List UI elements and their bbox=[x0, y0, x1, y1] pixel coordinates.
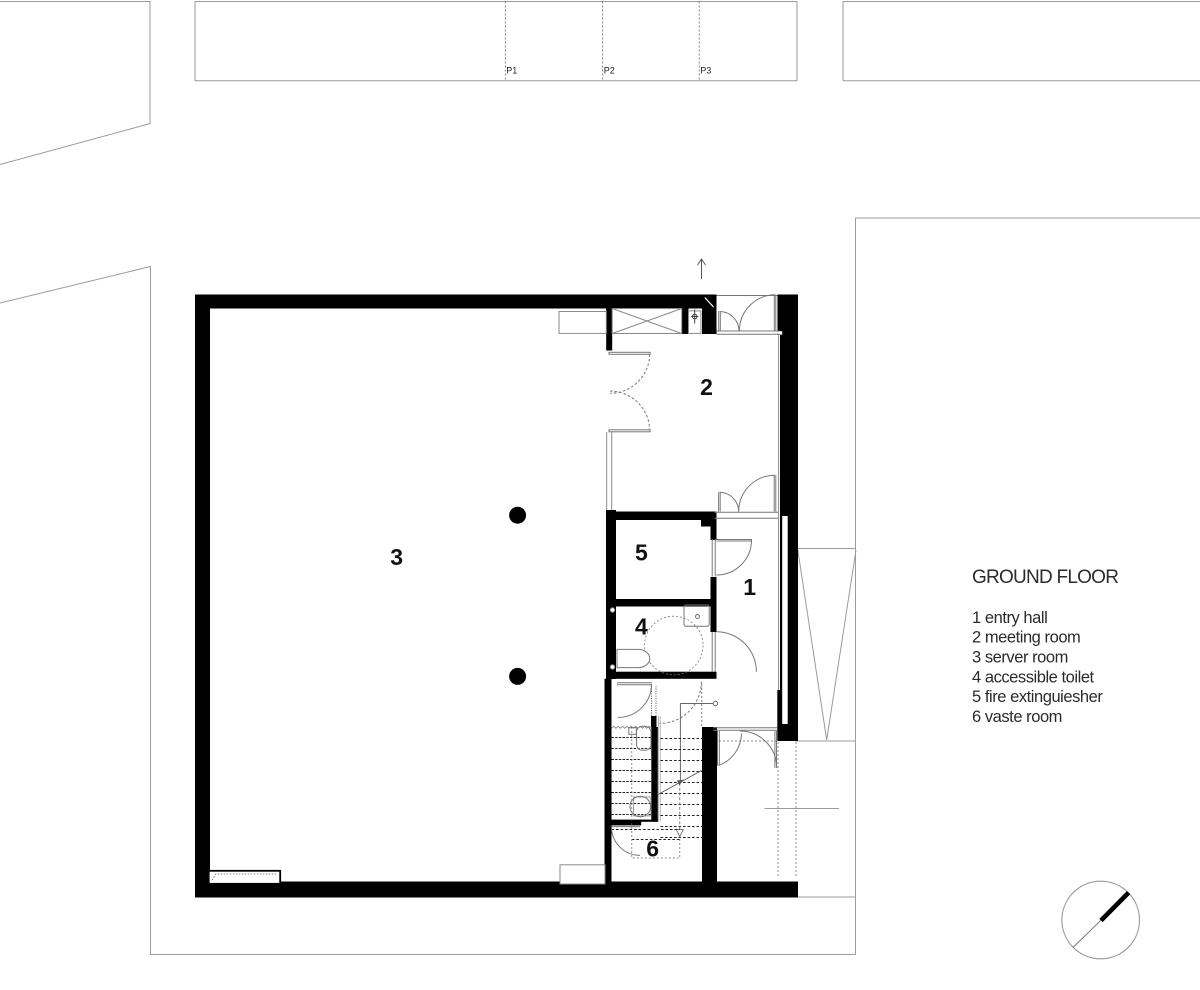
svg-text:4: 4 bbox=[635, 613, 648, 639]
svg-text:5: 5 bbox=[635, 540, 648, 566]
svg-text:6: 6 bbox=[646, 836, 659, 862]
svg-text:4 accessible toilet: 4 accessible toilet bbox=[972, 668, 1095, 686]
svg-text:1: 1 bbox=[743, 574, 756, 600]
svg-text:1 entry hall: 1 entry hall bbox=[972, 609, 1047, 627]
svg-text:GROUND FLOOR: GROUND FLOOR bbox=[972, 567, 1118, 588]
svg-text:2: 2 bbox=[700, 374, 713, 400]
svg-text:P2: P2 bbox=[604, 66, 615, 76]
svg-text:5 fire extinguiesher: 5 fire extinguiesher bbox=[972, 688, 1103, 706]
svg-text:3: 3 bbox=[390, 544, 403, 570]
svg-text:6 vaste room: 6 vaste room bbox=[972, 708, 1062, 726]
svg-text:2 meeting room: 2 meeting room bbox=[972, 629, 1080, 647]
svg-text:P1: P1 bbox=[506, 66, 517, 76]
svg-text:P3: P3 bbox=[700, 66, 711, 76]
svg-text:3 server room: 3 server room bbox=[972, 649, 1068, 667]
